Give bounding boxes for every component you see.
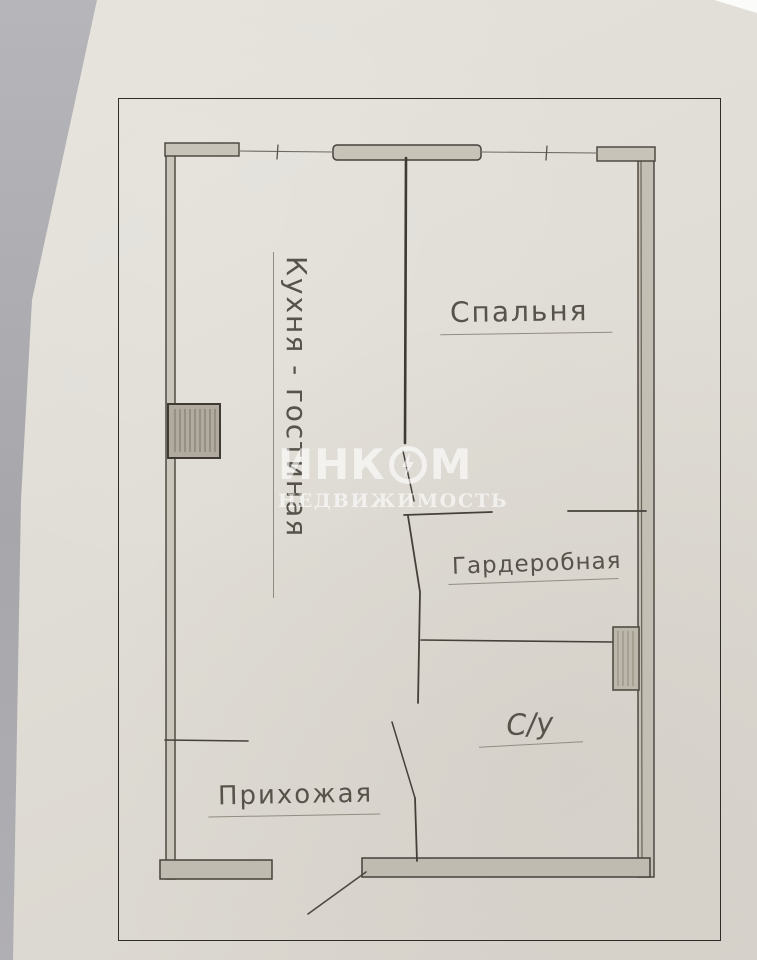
- watermark-brand: ИНК М: [278, 444, 508, 486]
- wall-bedroom-wardrobe-left: [404, 512, 492, 515]
- window-right-mullion-tick: [546, 146, 547, 160]
- room-label-wardrobe: Гардеробная: [448, 548, 619, 585]
- wall-hallway-stub: [165, 740, 248, 741]
- inkom-logo-icon: [388, 445, 428, 485]
- room-label-bedroom: Спальня: [440, 294, 613, 335]
- wall-bathroom-left-lower: [415, 798, 417, 861]
- room-label-bathroom: С/у: [477, 704, 583, 747]
- room-label-hallway: Прихожая: [208, 779, 381, 818]
- wall-top-right-pier: [597, 147, 655, 161]
- room-label-kitchen-living: Кухня - гостиная: [273, 252, 313, 598]
- floor-plan-photo: Кухня - гостиная Спальня Гардеробная С/у…: [0, 0, 757, 960]
- wall-bottom-left: [160, 860, 272, 879]
- window-right: [481, 152, 597, 153]
- window-left-mullion-tick: [277, 145, 278, 159]
- wall-bottom-right: [362, 858, 650, 877]
- wall-wardrobe-bathroom: [421, 640, 613, 642]
- bathroom-door-leaf: [392, 722, 415, 798]
- wall-right: [638, 151, 654, 877]
- watermark-brand-suffix: М: [430, 444, 473, 486]
- wall-wardrobe-left: [408, 516, 420, 703]
- watermark: ИНК М НЕДВИЖИМОСТЬ: [278, 444, 508, 512]
- wall-kitchen-bedroom: [405, 158, 406, 443]
- watermark-brand-prefix: ИНК: [278, 444, 386, 486]
- shaft-box-right: [613, 627, 639, 690]
- watermark-tagline: НЕДВИЖИМОСТЬ: [278, 490, 508, 512]
- entrance-door-leaf: [308, 872, 366, 914]
- shaft-box-left: [168, 404, 220, 458]
- wall-left: [166, 150, 175, 879]
- window-left: [239, 151, 333, 152]
- wall-top-left-pier: [165, 143, 239, 156]
